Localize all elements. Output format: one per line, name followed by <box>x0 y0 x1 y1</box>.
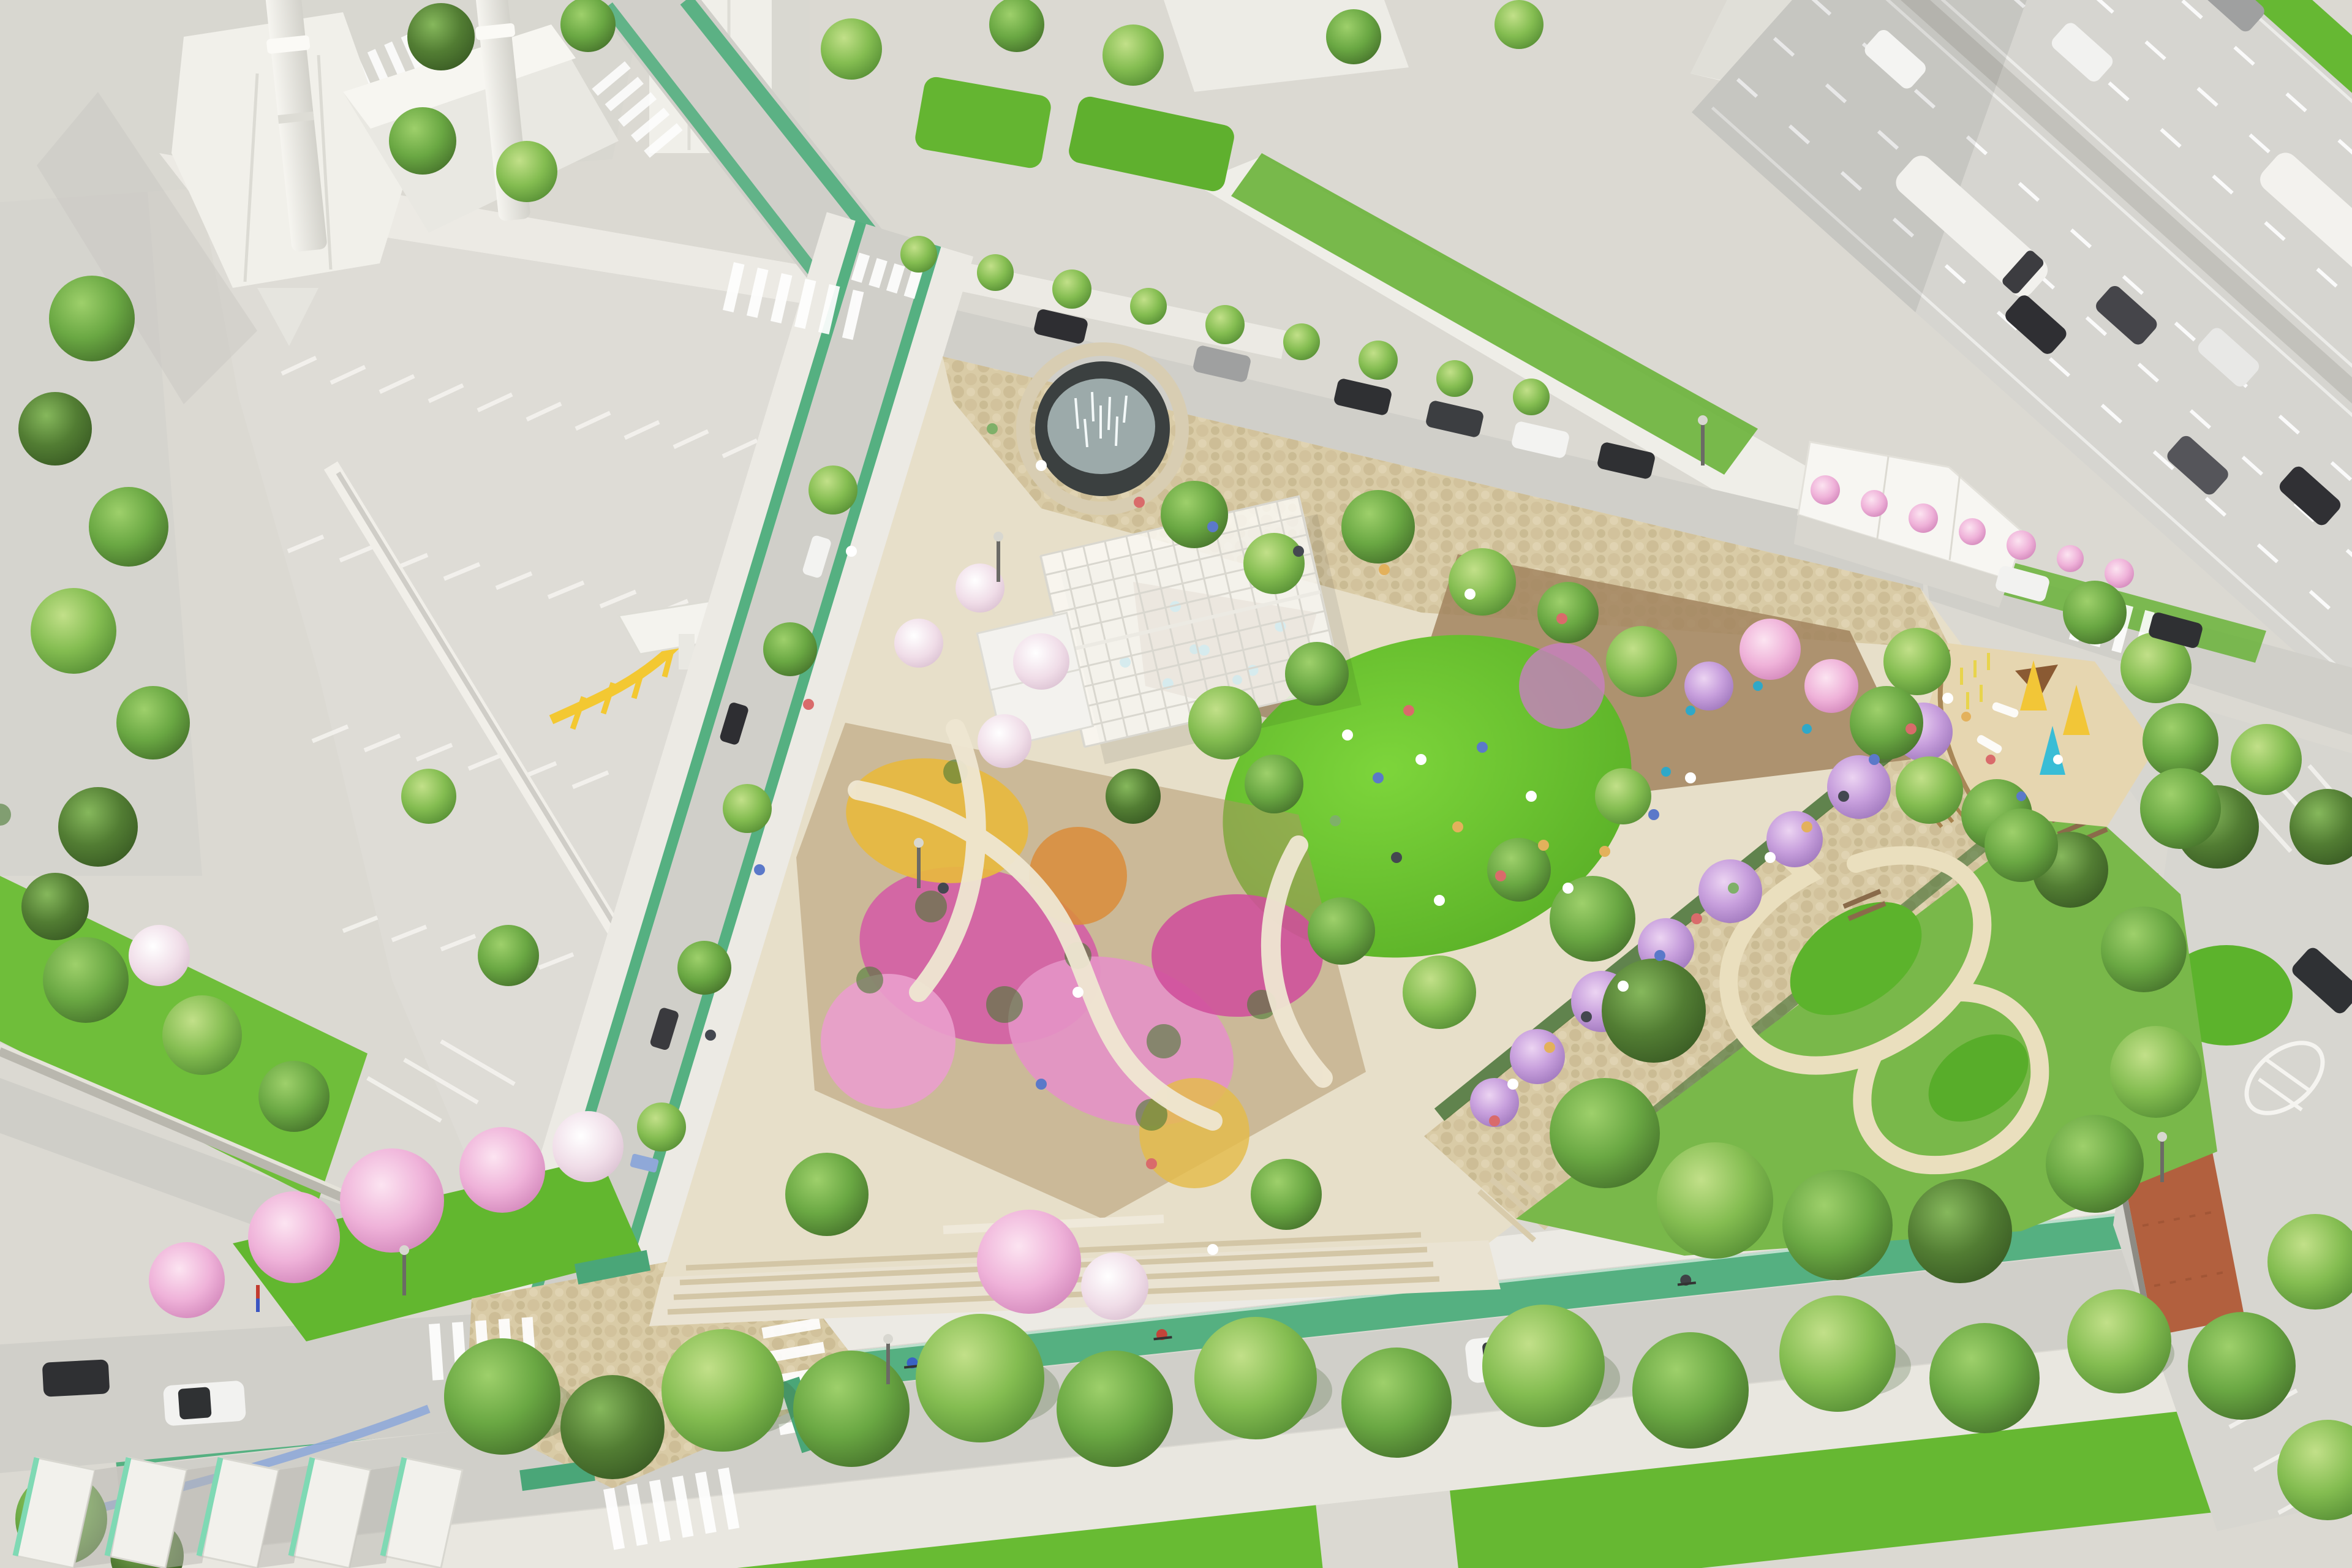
cherry-tree <box>552 1111 624 1182</box>
blossom-tree <box>1081 1253 1148 1320</box>
cherry-tree <box>248 1191 340 1283</box>
aerial-park-rendering <box>0 0 2352 1568</box>
cherry-tree <box>459 1127 545 1213</box>
rendering-canvas <box>0 0 2352 1568</box>
station-canopy-fins <box>15 1458 462 1568</box>
cherry-tree <box>340 1148 444 1253</box>
blossom-tree <box>977 1210 1081 1314</box>
cherry-tree <box>149 1242 225 1318</box>
splash-pad-fountain <box>1023 349 1182 508</box>
